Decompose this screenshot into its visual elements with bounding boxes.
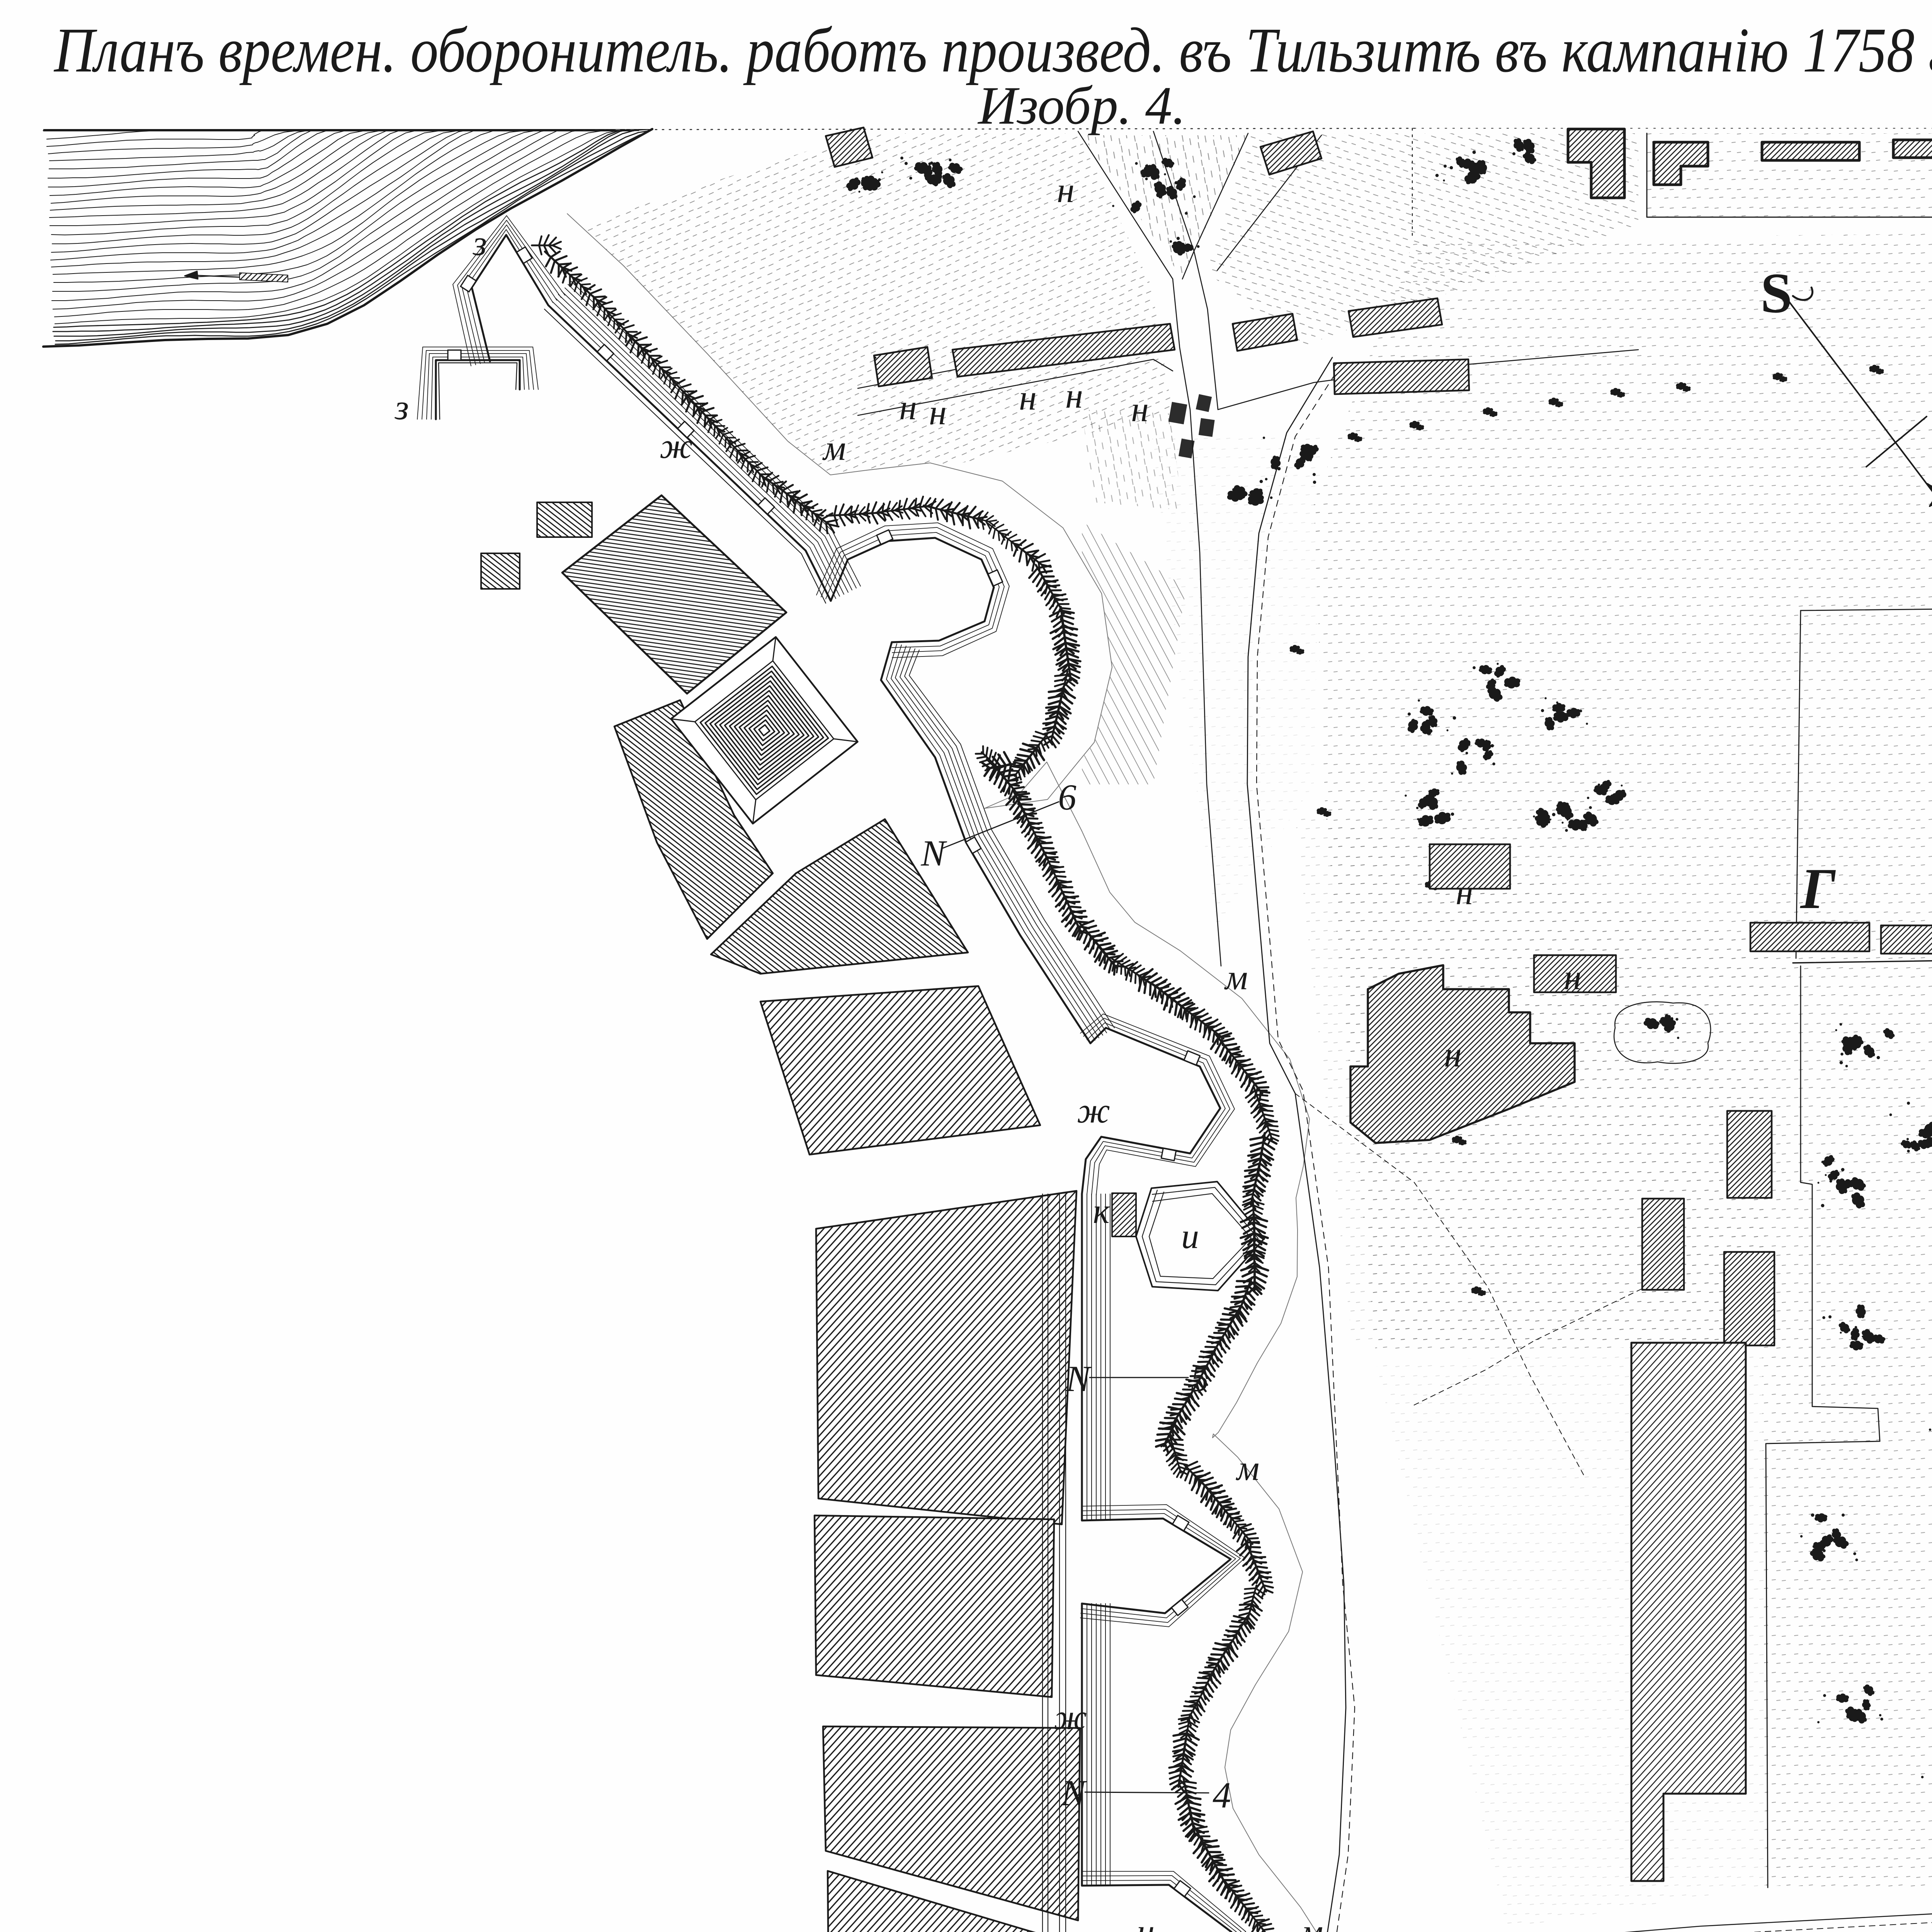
- svg-text:ж: ж: [1054, 1697, 1087, 1737]
- svg-text:н: н: [1564, 957, 1582, 997]
- svg-text:н: н: [899, 388, 917, 427]
- svg-text:н: н: [929, 393, 947, 432]
- svg-text:к: к: [1093, 1191, 1110, 1231]
- svg-text:6: 6: [1058, 777, 1077, 818]
- svg-text:н: н: [1019, 378, 1037, 417]
- svg-text:Планъ времен. оборонитель. раб: Планъ времен. оборонитель. работъ произв…: [53, 15, 1932, 85]
- svg-text:Г: Г: [1800, 857, 1836, 921]
- svg-text:м: м: [1299, 1912, 1323, 1932]
- svg-text:ж: ж: [660, 426, 693, 466]
- svg-text:N: N: [920, 833, 947, 874]
- svg-text:з: з: [472, 223, 487, 263]
- svg-text:Изобр. 4.: Изобр. 4.: [977, 76, 1185, 136]
- svg-text:ж: ж: [1077, 1091, 1110, 1130]
- svg-text:S: S: [1760, 262, 1792, 325]
- svg-text:м: м: [822, 428, 846, 468]
- svg-text:м: м: [1236, 1448, 1260, 1488]
- svg-text:н: н: [1131, 389, 1149, 429]
- svg-text:и: и: [1181, 1216, 1199, 1256]
- svg-text:н: н: [1456, 872, 1473, 912]
- svg-text:и: и: [1137, 1912, 1155, 1932]
- svg-text:4: 4: [1213, 1775, 1231, 1816]
- svg-text:N: N: [1061, 1772, 1087, 1813]
- svg-text:н: н: [1444, 1035, 1462, 1074]
- svg-text:м: м: [1224, 957, 1248, 997]
- svg-text:5: 5: [1190, 1358, 1209, 1399]
- svg-text:з: з: [394, 388, 409, 427]
- svg-text:н: н: [1065, 376, 1083, 415]
- svg-text:н: н: [1057, 170, 1075, 210]
- svg-text:N: N: [1065, 1358, 1092, 1399]
